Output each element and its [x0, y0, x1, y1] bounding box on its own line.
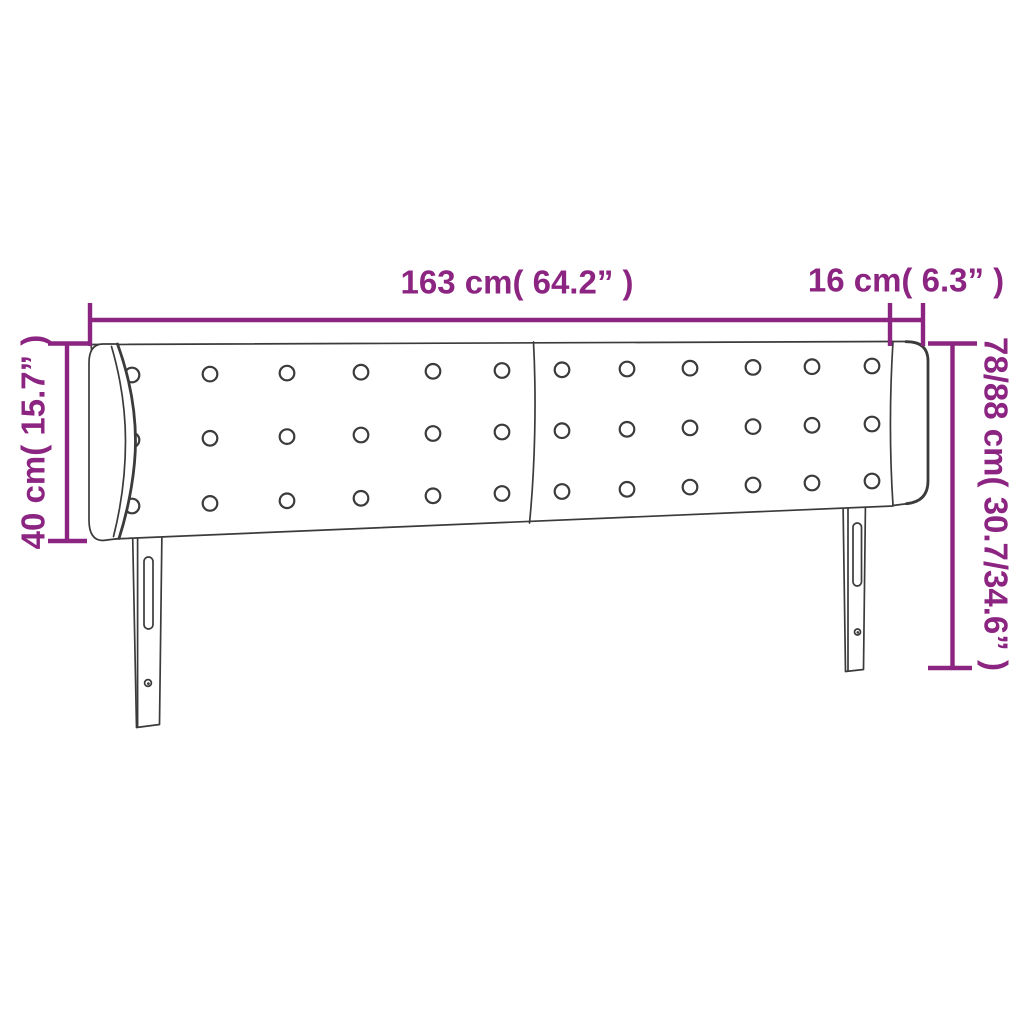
tufting-button	[426, 364, 441, 379]
left-height-dimension-line	[48, 344, 92, 542]
right-height-dimension-line	[928, 344, 977, 669]
tufting-button	[555, 423, 570, 438]
tufting-button	[865, 359, 880, 374]
tufting-button	[203, 496, 218, 511]
tufting-button	[354, 491, 369, 506]
tufting-button	[746, 360, 761, 375]
tufting-button	[203, 431, 218, 446]
right-height-label: 78/88 cm( 30.7/34.6” )	[980, 337, 1013, 671]
right-wing	[890, 342, 928, 506]
right-leg	[843, 501, 866, 672]
tufting-button	[620, 422, 635, 437]
tufting-button	[280, 494, 295, 509]
tufting-button	[280, 429, 295, 444]
tufting-button	[683, 480, 698, 495]
tufting-button	[683, 421, 698, 436]
tufting-button	[746, 419, 761, 434]
tufting-button	[865, 417, 880, 432]
tufting-button	[426, 426, 441, 441]
left-leg-bolt-hole-center	[147, 682, 150, 685]
tufting-button	[620, 482, 635, 497]
tufting-button	[805, 359, 820, 374]
tufting-button	[495, 363, 510, 378]
tufting-button	[620, 362, 635, 377]
tufting-button	[280, 366, 295, 381]
left-leg	[133, 527, 163, 728]
tufting-button	[354, 365, 369, 380]
left-height-label: 40 cm( 15.7” )	[17, 335, 50, 550]
tufting-button	[746, 478, 761, 493]
main-width-label: 163 cm( 64.2” )	[401, 266, 634, 299]
tufting-button	[805, 418, 820, 433]
right-leg-bolt-hole-center	[857, 631, 860, 634]
side-width-label: 16 cm( 6.3” )	[808, 264, 1004, 297]
product-dimension-diagram: 163 cm( 64.2” ) 16 cm( 6.3” ) 40 cm( 15.…	[0, 0, 1024, 1024]
right-wing-panel	[890, 342, 928, 506]
tufting-button	[683, 361, 698, 376]
tufting-button	[495, 425, 510, 440]
tufting-button	[805, 476, 820, 491]
tufting-button	[426, 489, 441, 504]
tufting-button	[495, 486, 510, 501]
tufting-button	[354, 428, 369, 443]
top-width-dimension-line	[90, 303, 923, 346]
tufting-button	[555, 363, 570, 378]
tufting-button	[555, 484, 570, 499]
headboard-line-drawing	[0, 0, 1024, 1024]
tufting-button	[203, 367, 218, 382]
tufting-button	[865, 474, 880, 489]
